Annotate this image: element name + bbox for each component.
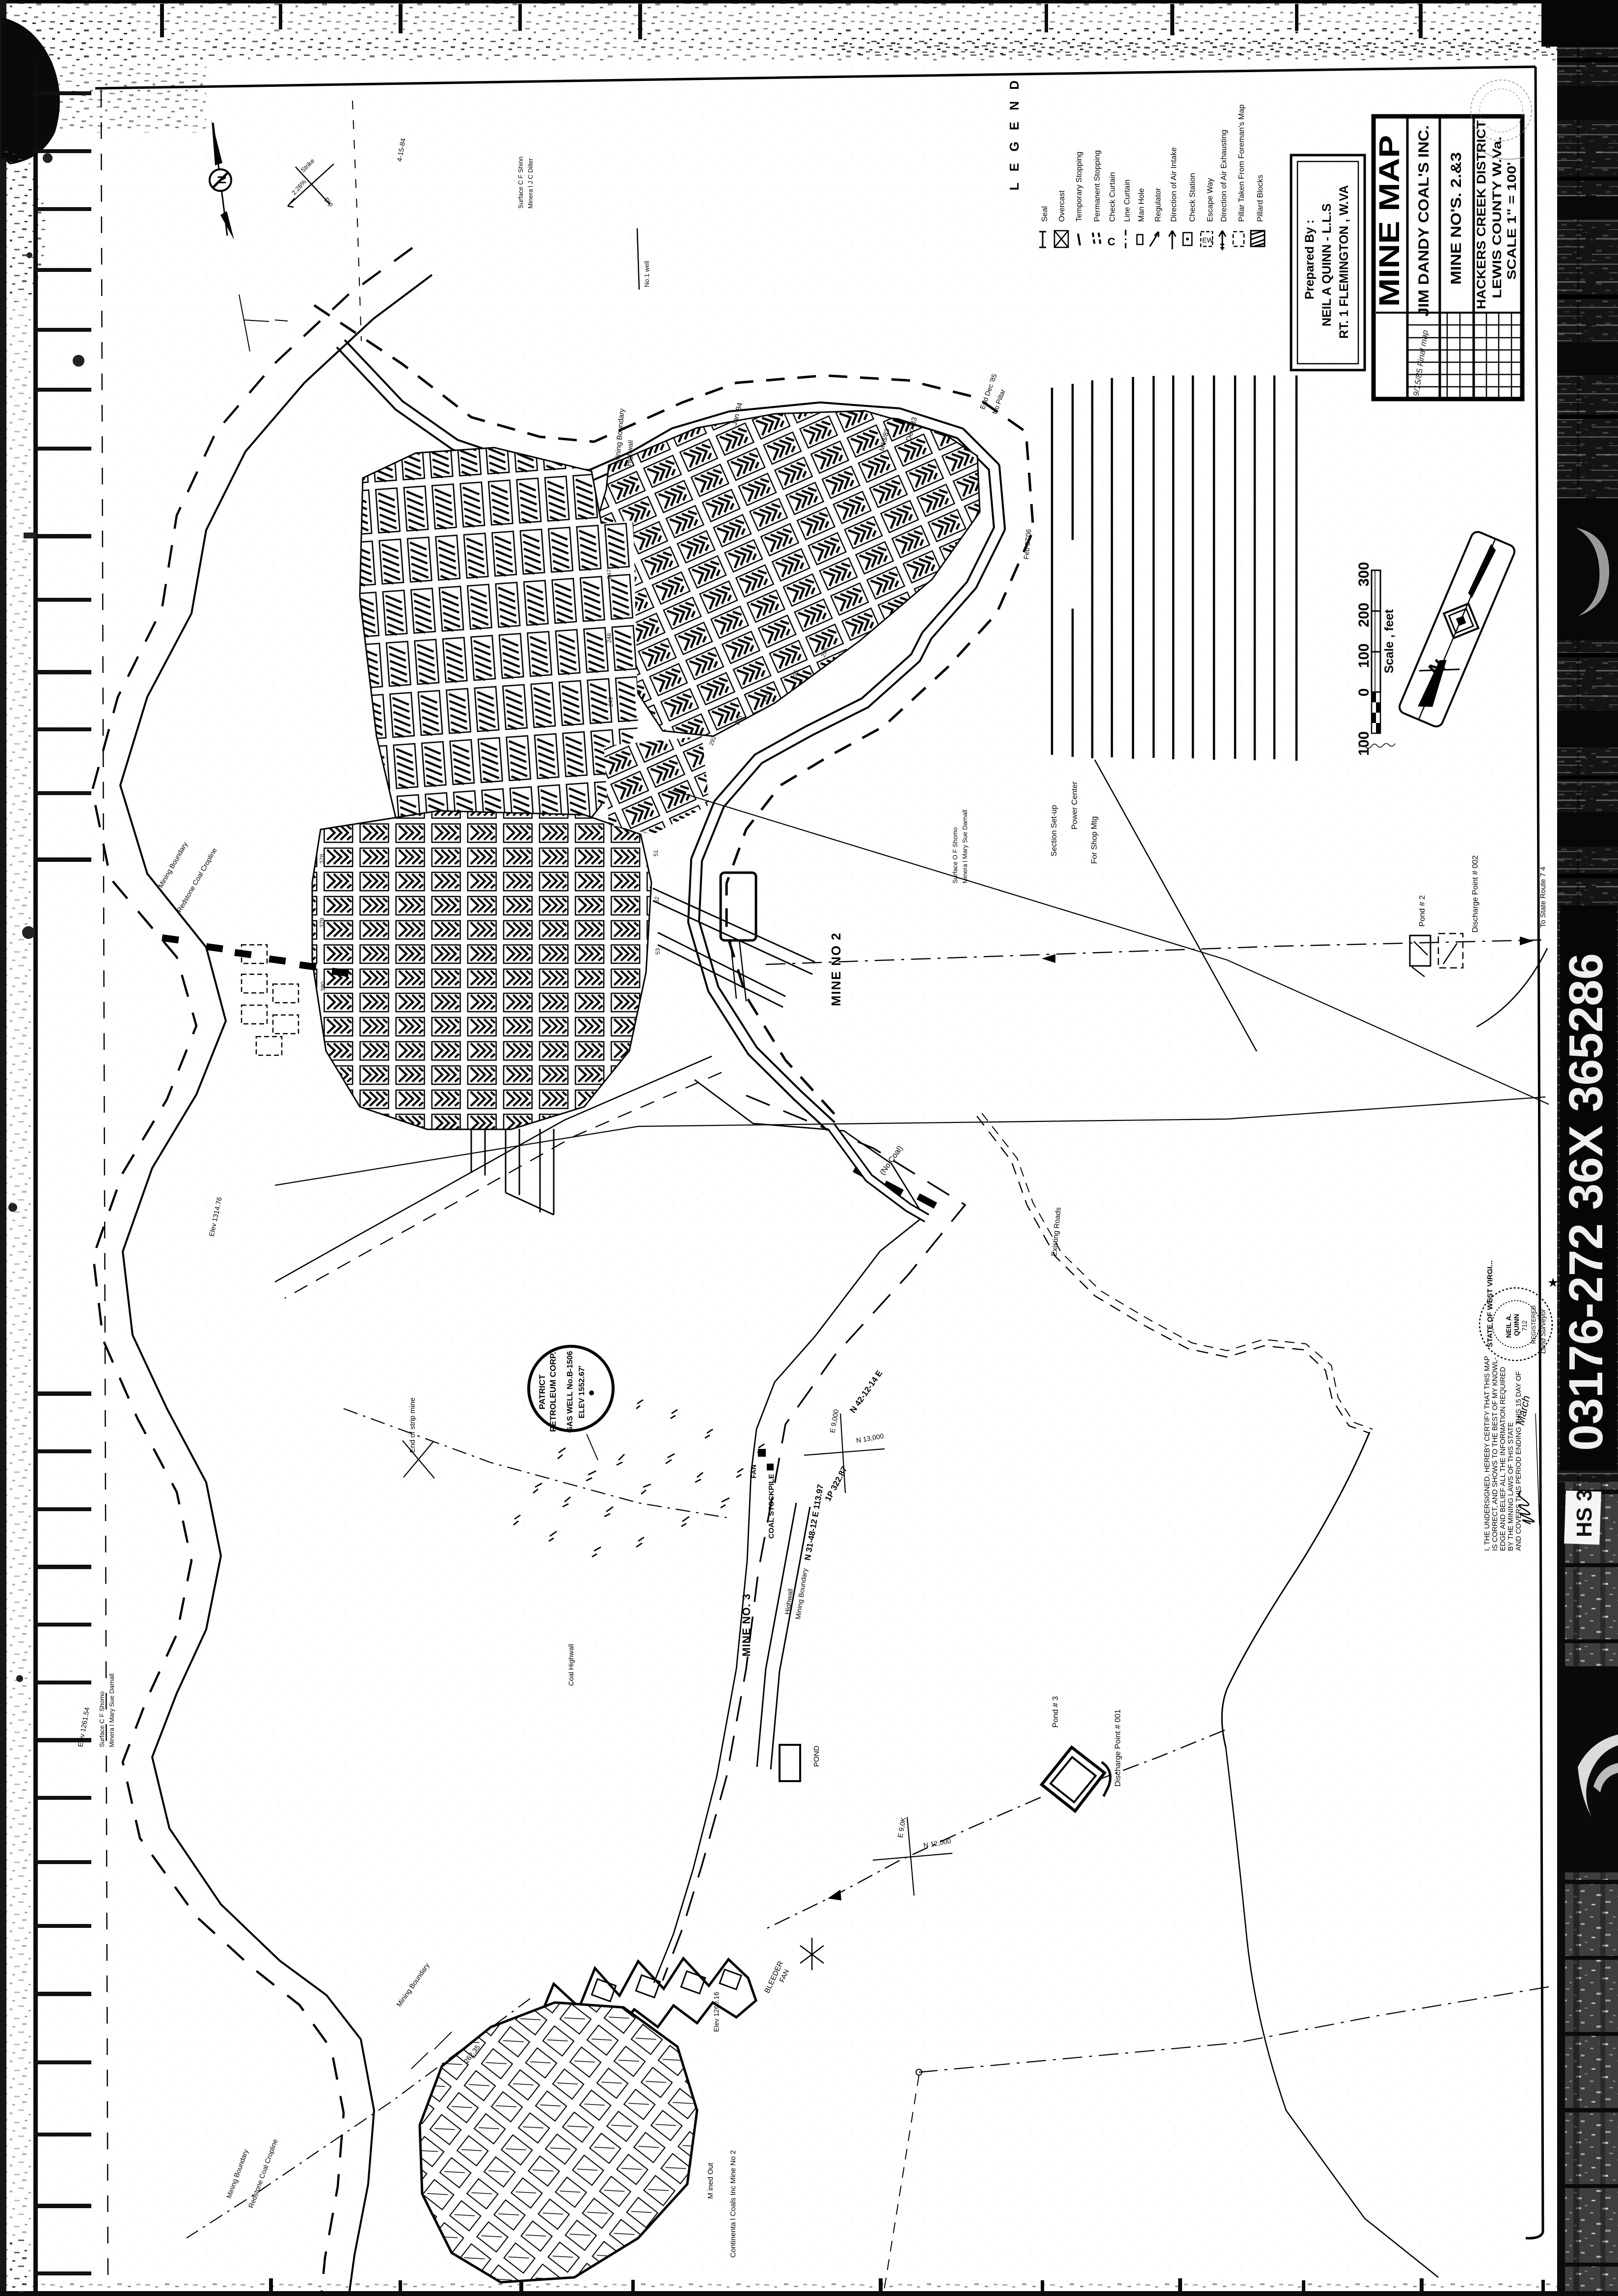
- svg-text:Temporary Stopping: Temporary Stopping: [1075, 152, 1083, 222]
- svg-text:★: ★: [1547, 1275, 1559, 1290]
- svg-text:M ined Out: M ined Out: [706, 2163, 715, 2199]
- svg-text:LEWIS COUNTY W.Va.: LEWIS COUNTY W.Va.: [1490, 136, 1504, 298]
- svg-text:712: 712: [1521, 1320, 1528, 1331]
- svg-text:IS CORRECT, AND SHOWS TO THE B: IS CORRECT, AND SHOWS TO THE BEST OF MY …: [1491, 1358, 1499, 1551]
- svg-text:Elev 1260.16: Elev 1260.16: [712, 1992, 720, 2032]
- svg-text:200: 200: [1356, 603, 1372, 627]
- svg-text:NEIL A.: NEIL A.: [1505, 1314, 1512, 1338]
- svg-text:300: 300: [1356, 562, 1372, 587]
- svg-text:BY THE MINING LAWS OF THIS STA: BY THE MINING LAWS OF THIS STATE: [1507, 1422, 1515, 1551]
- svg-text:Seal: Seal: [1041, 206, 1049, 222]
- svg-text:247: 247: [606, 569, 613, 579]
- svg-text:Direction of Air Intake: Direction of Air Intake: [1170, 147, 1178, 222]
- svg-text:248: 248: [606, 633, 613, 643]
- svg-text:Regulator: Regulator: [1154, 187, 1162, 222]
- svg-text:STATE OF WEST VIRGI...: STATE OF WEST VIRGI...: [1486, 1260, 1494, 1347]
- svg-text:Surface O F Shomo: Surface O F Shomo: [951, 827, 959, 883]
- svg-text:C: C: [1107, 236, 1115, 248]
- svg-text:MINE MAP: MINE MAP: [1374, 135, 1405, 307]
- svg-text:MINE NO. 3: MINE NO. 3: [740, 1593, 753, 1656]
- svg-text:0: 0: [1356, 688, 1372, 696]
- svg-text:Discharge Point # 002: Discharge Point # 002: [1471, 855, 1480, 933]
- svg-text:EDGE AND BELIEF ALL THE INFORM: EDGE AND BELIEF ALL THE INFORMATION REQU…: [1499, 1367, 1507, 1551]
- svg-text:Man Hole: Man Hole: [1137, 188, 1146, 222]
- svg-text:I, THE UNDERSIGNED, HEREBY CER: I, THE UNDERSIGNED, HEREBY CERTIFY THAT …: [1483, 1356, 1491, 1551]
- svg-text:Coal Highwall: Coal Highwall: [567, 1644, 575, 1686]
- svg-text:MINE NO 2: MINE NO 2: [829, 932, 843, 1006]
- svg-text:Pillard Blocks: Pillard Blocks: [1256, 175, 1265, 222]
- svg-text:Surface C F Shinn: Surface C F Shinn: [517, 157, 524, 209]
- svg-text:Section Set-up: Section Set-up: [1050, 805, 1058, 856]
- svg-text:N: N: [216, 176, 229, 184]
- svg-text:HS 3: HS 3: [1572, 1489, 1596, 1537]
- svg-text:PATRICT: PATRICT: [538, 1374, 547, 1410]
- svg-text:PETROLEUM CORP.: PETROLEUM CORP.: [548, 1352, 558, 1432]
- svg-text:Minera l J C Diller: Minera l J C Diller: [527, 158, 534, 209]
- svg-text:Surface C F Shomo: Surface C F Shomo: [98, 1691, 106, 1747]
- svg-text:Pond # 2: Pond # 2: [1418, 895, 1427, 927]
- svg-text:Direction of Air Exhausting: Direction of Air Exhausting: [1220, 130, 1228, 222]
- svg-text:POND: POND: [812, 1745, 821, 1767]
- svg-text:QUINN: QUINN: [1512, 1314, 1520, 1336]
- svg-text:249: 249: [607, 697, 614, 707]
- svg-text:MINE NO'S. 2.&3: MINE NO'S. 2.&3: [1448, 152, 1464, 285]
- svg-text:Overcast: Overcast: [1058, 190, 1066, 222]
- svg-text:HACKERS CREEK DISTRICT: HACKERS CREEK DISTRICT: [1475, 120, 1488, 309]
- svg-text:378: 378: [319, 854, 325, 864]
- svg-text:Permanent Stopping: Permanent Stopping: [1093, 150, 1102, 222]
- svg-text:No.1 well: No.1 well: [643, 261, 650, 287]
- svg-text:For Shop Mtg: For Shop Mtg: [1090, 816, 1099, 864]
- svg-text:100: 100: [1356, 731, 1372, 756]
- svg-text:RT. 1 FLEMINGTON , W.VA: RT. 1 FLEMINGTON , W.VA: [1337, 185, 1351, 339]
- svg-text:Line Curtain: Line Curtain: [1123, 180, 1132, 222]
- svg-text:Check Curtain: Check Curtain: [1108, 172, 1117, 222]
- svg-text:EW: EW: [1202, 236, 1213, 244]
- svg-text:Escape Way: Escape Way: [1206, 178, 1214, 222]
- svg-text:Pond # 3: Pond # 3: [1052, 1696, 1060, 1728]
- svg-text:51: 51: [652, 850, 659, 856]
- svg-text:GAS WELL No.B-1506: GAS WELL No.B-1506: [566, 1351, 574, 1433]
- svg-text:Check Station: Check Station: [1188, 173, 1197, 222]
- svg-text:03176-272 36X 365286: 03176-272 36X 365286: [1559, 953, 1613, 1451]
- svg-text:Prepared By :: Prepared By :: [1303, 219, 1317, 299]
- svg-text:Minera l Mary Sue Darnall: Minera l Mary Sue Darnall: [108, 1674, 115, 1747]
- svg-text:Scale , feet: Scale , feet: [1382, 609, 1396, 673]
- svg-text:Minera l Mary Sue Darnall: Minera l Mary Sue Darnall: [961, 810, 969, 883]
- svg-text:SCALE 1" = 100': SCALE 1" = 100': [1505, 162, 1519, 280]
- svg-text:FAN: FAN: [750, 1465, 757, 1478]
- svg-text:NEIL A QUINN - L.L.S: NEIL A QUINN - L.L.S: [1320, 204, 1334, 326]
- svg-text:COAL STOCKPILE: COAL STOCKPILE: [767, 1474, 776, 1539]
- svg-text:100: 100: [1356, 643, 1372, 668]
- svg-text:L E G E N D: L E G E N D: [1007, 77, 1022, 190]
- svg-text:Land Surveyor: Land Surveyor: [1539, 1308, 1547, 1354]
- svg-text:To State Route 7 4: To State Route 7 4: [1539, 867, 1547, 928]
- svg-text:Power Center: Power Center: [1071, 781, 1079, 829]
- svg-text:53: 53: [654, 948, 661, 955]
- svg-text:Pillar Taken From Foreman's: Pillar Taken From Foreman's Map: [1238, 105, 1246, 222]
- svg-text:JIM DANDY COAL'S INC.: JIM DANDY COAL'S INC.: [1416, 125, 1432, 317]
- svg-text:380: 380: [320, 982, 326, 991]
- svg-text:379: 379: [319, 918, 325, 928]
- svg-text:Continenta l Coals Inc Mine: Continenta l Coals Inc Mine No 2: [729, 2150, 737, 2258]
- svg-text:52: 52: [653, 896, 660, 903]
- svg-text:ELEV 1552.67': ELEV 1552.67': [578, 1365, 586, 1418]
- svg-text:REGISTERED: REGISTERED: [1530, 1306, 1537, 1344]
- svg-text:End of strip mine: End of strip mine: [408, 1397, 417, 1453]
- svg-text:Discharge Point # 001: Discharge Point # 001: [1114, 1709, 1122, 1787]
